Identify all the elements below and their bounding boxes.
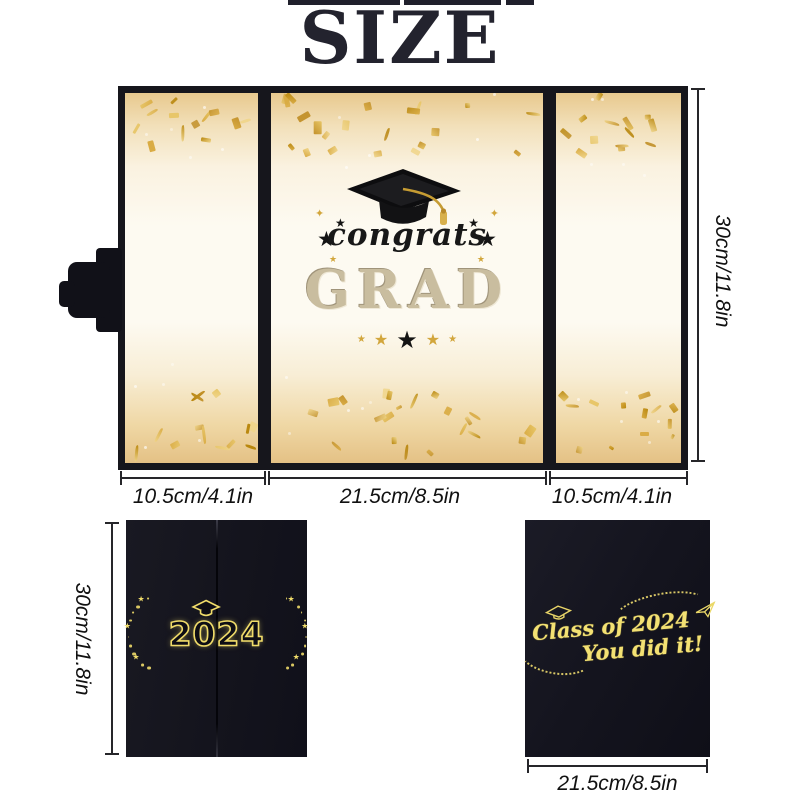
confetti-piece bbox=[588, 399, 599, 407]
confetti-piece bbox=[374, 150, 383, 157]
confetti-piece bbox=[526, 112, 541, 116]
confetti-piece bbox=[468, 429, 481, 438]
confetti-piece bbox=[231, 117, 241, 129]
confetti-piece bbox=[314, 122, 322, 135]
confetti-piece bbox=[331, 440, 341, 451]
front-card-height-dimension-line bbox=[111, 522, 113, 755]
arc-dot bbox=[291, 663, 294, 666]
confetti-piece bbox=[410, 394, 419, 410]
sparkle-dot bbox=[203, 106, 206, 109]
arc-dot bbox=[147, 598, 149, 600]
sparkle-dot bbox=[620, 420, 623, 423]
confetti-piece bbox=[426, 450, 434, 457]
confetti-piece bbox=[513, 149, 520, 156]
sparkle-dot bbox=[189, 156, 192, 159]
confetti-piece bbox=[465, 103, 470, 109]
confetti-piece bbox=[342, 120, 350, 131]
sparkle-dot bbox=[171, 363, 174, 366]
confetti-piece bbox=[182, 125, 185, 143]
confetti-piece bbox=[209, 108, 220, 116]
sparkle-dot bbox=[625, 391, 628, 394]
star-arc-right: ★★★ bbox=[274, 594, 310, 674]
confetti-piece bbox=[621, 403, 626, 409]
confetti-piece bbox=[667, 419, 671, 429]
sparkle-dot bbox=[347, 409, 350, 412]
sparkle-dot bbox=[144, 446, 147, 449]
confetti-piece bbox=[590, 136, 598, 144]
back-card-width-dimension-label: 21.5cm/8.5in bbox=[527, 772, 708, 796]
confetti-piece bbox=[297, 111, 312, 123]
confetti-piece bbox=[226, 439, 236, 449]
arc-star-icon: ★ bbox=[132, 654, 139, 662]
confetti-piece bbox=[578, 114, 588, 123]
confetti-piece bbox=[132, 123, 140, 134]
center-width-dimension-line bbox=[268, 477, 547, 479]
confetti-piece bbox=[211, 388, 221, 398]
sparkle-dot bbox=[145, 133, 148, 136]
back-card-width-dimension-line bbox=[527, 765, 708, 767]
confetti-piece bbox=[322, 131, 331, 140]
confetti-piece bbox=[364, 101, 372, 110]
confetti-piece bbox=[384, 127, 391, 140]
sparkle-dot bbox=[170, 128, 173, 131]
confetti-piece bbox=[645, 141, 656, 147]
center-width-dimension-label: 21.5cm/8.5in bbox=[253, 485, 547, 509]
confetti-piece bbox=[648, 118, 658, 132]
confetti-piece bbox=[642, 408, 648, 419]
arc-dot bbox=[297, 605, 301, 609]
confetti-piece bbox=[407, 107, 421, 114]
confetti-piece bbox=[668, 402, 679, 413]
confetti-piece bbox=[145, 109, 158, 117]
sparkle-dot bbox=[221, 148, 224, 151]
confetti-piece bbox=[410, 147, 420, 156]
confetti-piece bbox=[386, 391, 393, 401]
sparkle-dot bbox=[643, 174, 646, 177]
confetti-piece bbox=[239, 119, 252, 125]
confetti-piece bbox=[459, 423, 468, 435]
confetti-piece bbox=[169, 112, 179, 117]
confetti-piece bbox=[303, 149, 311, 158]
sparkle-dot bbox=[368, 154, 371, 157]
sparkle-dot bbox=[361, 407, 364, 410]
star-icon: ★ bbox=[396, 327, 418, 354]
front-card-height-dimension-label: 30cm/11.8in bbox=[70, 569, 94, 709]
confetti-piece bbox=[608, 445, 614, 451]
confetti-piece bbox=[288, 143, 295, 151]
sparkle-dot bbox=[476, 138, 479, 141]
confetti-piece bbox=[154, 428, 163, 441]
confetti-piece bbox=[170, 96, 178, 104]
right-width-dimension-line bbox=[549, 477, 688, 479]
confetti-piece bbox=[431, 127, 439, 136]
paper-plane-icon bbox=[693, 598, 717, 625]
page-title: SIZE bbox=[0, 2, 800, 74]
arc-star-icon: ★ bbox=[287, 596, 294, 604]
confetti-piece bbox=[327, 146, 338, 156]
star-icon: ★ bbox=[426, 332, 440, 349]
confetti-piece bbox=[245, 423, 250, 434]
sparkle-dot bbox=[591, 98, 594, 101]
confetti-piece bbox=[576, 446, 583, 454]
arc-dot bbox=[301, 612, 303, 614]
confetti-piece bbox=[519, 437, 527, 445]
trifold-center-panel: ✦ ★ ★ ★ ✦ ★ ★ ★ congrats GRAD ★★★★★ bbox=[271, 93, 543, 463]
arc-dot bbox=[304, 645, 307, 648]
year-emblem: ★★★ 2024 ★★★ bbox=[169, 615, 265, 654]
confetti-piece bbox=[405, 444, 409, 460]
arc-dot bbox=[142, 663, 145, 666]
confetti-piece bbox=[392, 437, 398, 444]
confetti-piece bbox=[147, 140, 156, 152]
confetti-piece bbox=[443, 406, 452, 416]
arc-star-icon: ★ bbox=[138, 596, 145, 604]
confetti-piece bbox=[190, 120, 200, 130]
mini-cap-icon bbox=[191, 600, 221, 623]
sparkle-dot bbox=[285, 376, 288, 379]
star-icon: ★ bbox=[374, 332, 388, 349]
height-dimension-line bbox=[697, 88, 699, 462]
confetti-piece bbox=[202, 425, 207, 444]
confetti-piece bbox=[615, 144, 629, 147]
arc-star-icon: ★ bbox=[293, 654, 300, 662]
confetti-piece bbox=[576, 147, 589, 158]
confetti-piece bbox=[308, 409, 319, 418]
confetti-piece bbox=[170, 441, 180, 450]
sparkle-dot bbox=[345, 166, 348, 169]
arc-dot bbox=[286, 666, 290, 670]
confetti-piece bbox=[650, 405, 662, 414]
confetti-piece bbox=[134, 444, 138, 462]
confetti-piece bbox=[245, 444, 256, 450]
arc-dot bbox=[129, 645, 132, 648]
sparkle-dot bbox=[288, 432, 291, 435]
height-dimension-label: 30cm/11.8in bbox=[710, 201, 734, 341]
confetti-piece bbox=[670, 433, 675, 439]
confetti-piece bbox=[524, 425, 537, 438]
left-width-dimension-line bbox=[120, 477, 266, 479]
folded-card-back: Class of 2024 You did it! bbox=[525, 520, 710, 757]
sparkle-dot bbox=[162, 383, 165, 386]
confetti-piece bbox=[565, 404, 579, 407]
arc-star-icon: ★ bbox=[301, 623, 308, 631]
trifold-right-panel bbox=[556, 93, 681, 463]
sparkle-dot bbox=[338, 116, 341, 119]
confetti-piece bbox=[139, 99, 153, 109]
sparkle-dot bbox=[198, 439, 201, 442]
trifold-card-open: ✦ ★ ★ ★ ✦ ★ ★ ★ congrats GRAD ★★★★★ bbox=[118, 86, 688, 470]
trifold-left-panel bbox=[125, 93, 258, 463]
sparkle-dot bbox=[369, 401, 372, 404]
confetti-piece bbox=[396, 404, 403, 410]
arc-dot bbox=[305, 636, 307, 638]
bottom-stars: ★★★★★ bbox=[271, 329, 543, 353]
grad-text: GRAD bbox=[271, 259, 543, 321]
arc-dot bbox=[147, 666, 151, 670]
clasp-buckle-icon bbox=[59, 281, 75, 307]
arc-dot bbox=[301, 652, 305, 656]
sparkle-dot bbox=[657, 420, 660, 423]
arc-star-icon: ★ bbox=[124, 623, 131, 631]
size-diagram: SIZE ✦ ★ ★ ★ ✦ ★ ★ ★ bbox=[0, 0, 800, 800]
sparkle-dot bbox=[134, 385, 137, 388]
sparkle-dot bbox=[590, 163, 593, 166]
folded-card-front: ★★★ 2024 ★★★ bbox=[126, 520, 307, 757]
mini-cap-outline-icon bbox=[543, 600, 573, 627]
confetti-piece bbox=[640, 432, 649, 436]
sparkle-dot bbox=[622, 163, 625, 166]
right-width-dimension-label: 10.5cm/4.1in bbox=[536, 485, 688, 509]
sparkle-dot bbox=[577, 398, 580, 401]
confetti-piece bbox=[200, 137, 211, 142]
confetti-piece bbox=[638, 391, 651, 400]
left-width-dimension-label: 10.5cm/4.1in bbox=[117, 485, 269, 509]
star-icon: ★ bbox=[357, 334, 366, 345]
confetti-piece bbox=[431, 391, 440, 400]
confetti-piece bbox=[417, 140, 426, 149]
arc-dot bbox=[136, 605, 140, 609]
confetti-piece bbox=[558, 391, 569, 402]
star-arc-left: ★★★ bbox=[123, 594, 159, 674]
sparkle-dot bbox=[601, 98, 604, 101]
arc-dot bbox=[132, 612, 134, 614]
sparkle-dot bbox=[493, 93, 496, 96]
arc-dot bbox=[128, 636, 130, 638]
sparkle-dot bbox=[648, 441, 651, 444]
star-icon: ★ bbox=[448, 334, 457, 345]
congrats-text: congrats bbox=[271, 217, 543, 253]
back-card-message: Class of 2024 You did it! bbox=[531, 606, 705, 671]
confetti-piece bbox=[604, 120, 620, 127]
confetti-piece bbox=[560, 128, 572, 139]
